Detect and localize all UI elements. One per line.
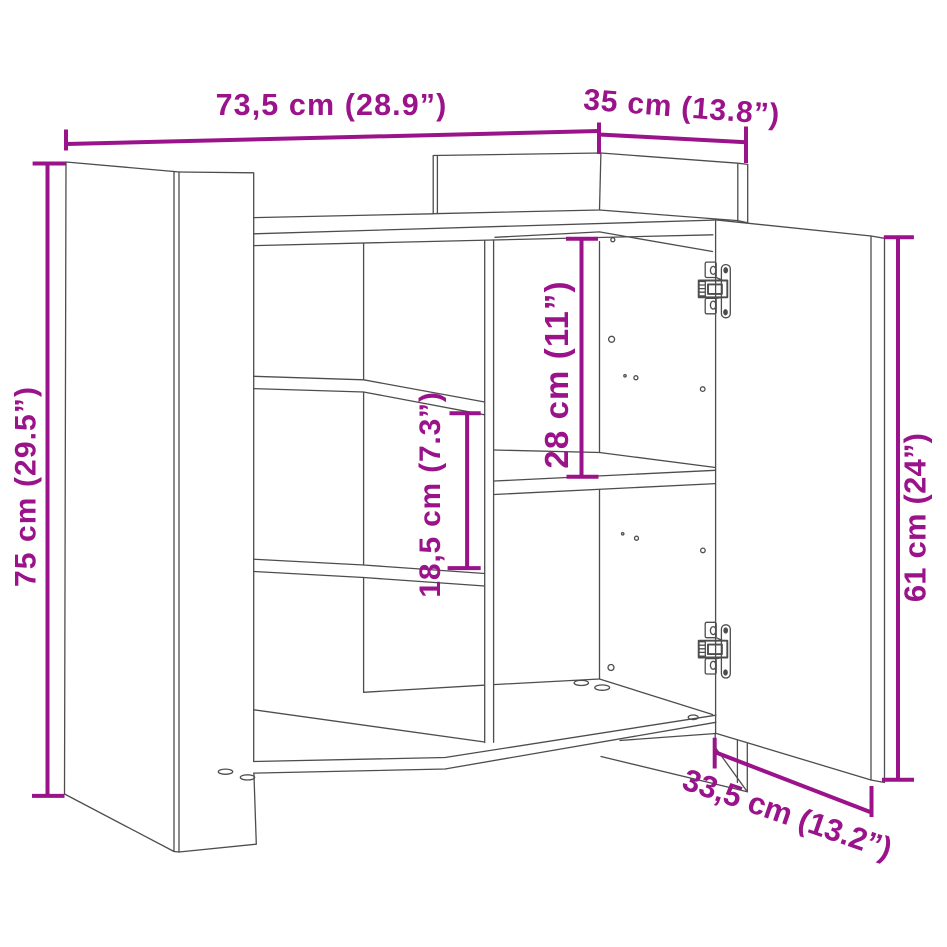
svg-text:18,5 cm (7.3”): 18,5 cm (7.3”) <box>414 391 447 597</box>
svg-text:28 cm (11”): 28 cm (11”) <box>538 280 575 468</box>
svg-text:73,5 cm (28.9”): 73,5 cm (28.9”) <box>216 88 448 122</box>
svg-text:61 cm (24”): 61 cm (24”) <box>898 433 933 602</box>
svg-text:75 cm (29.5”): 75 cm (29.5”) <box>10 386 43 587</box>
